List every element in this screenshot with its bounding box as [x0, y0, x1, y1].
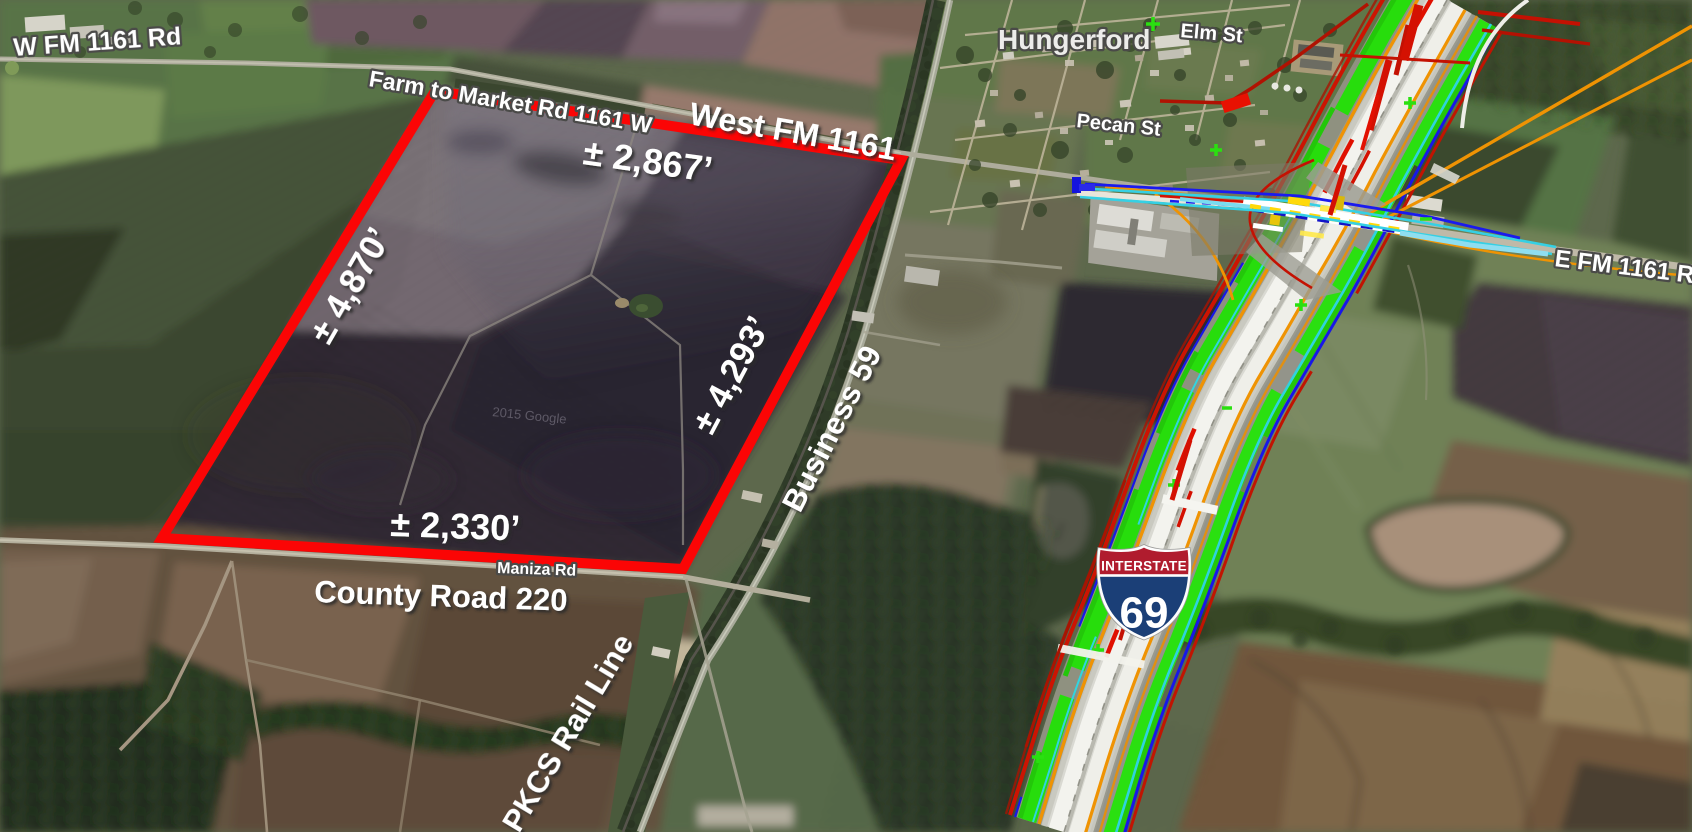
svg-text:Hungerford: Hungerford — [998, 24, 1150, 55]
svg-text:69: 69 — [1120, 589, 1169, 638]
svg-text:Maniza Rd: Maniza Rd — [497, 560, 577, 580]
svg-text:INTERSTATE: INTERSTATE — [1101, 559, 1187, 574]
svg-text:± 2,330’: ± 2,330’ — [390, 503, 521, 549]
